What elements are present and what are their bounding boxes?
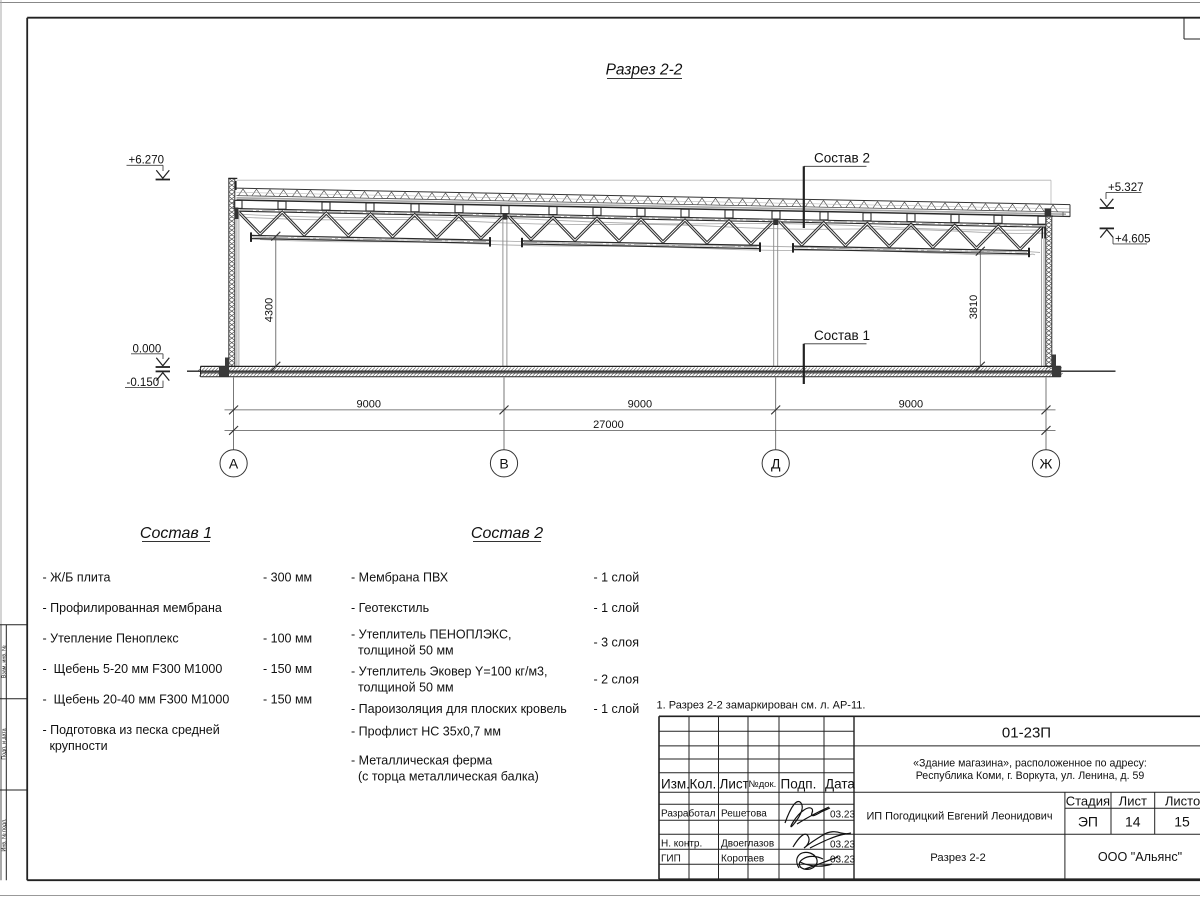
svg-text:«Здание магазина», расположенн: «Здание магазина», расположенное по адре…	[913, 758, 1147, 770]
svg-text:9000: 9000	[899, 399, 923, 411]
svg-text:№док.: №док.	[749, 779, 777, 790]
svg-text:- Профилированная мембрана: - Профилированная мембрана	[43, 601, 222, 615]
svg-text:крупности: крупности	[43, 739, 108, 753]
svg-text:Разработал: Разработал	[661, 808, 716, 820]
svg-text:03.23: 03.23	[830, 840, 855, 851]
svg-text:4300: 4300	[264, 298, 276, 322]
svg-text:- Утеплитель Эковер Y=100 кг/м: - Утеплитель Эковер Y=100 кг/м3,	[351, 665, 547, 679]
svg-text:толщиной 50 мм: толщиной 50 мм	[351, 644, 454, 658]
svg-text:ЭП: ЭП	[1078, 814, 1098, 830]
svg-text:Состав 1: Состав 1	[140, 525, 212, 542]
svg-text:- Мембрана ПВХ: - Мембрана ПВХ	[351, 571, 449, 585]
svg-text:- 2 слоя: - 2 слоя	[594, 673, 639, 687]
svg-text:Состав 1: Состав 1	[814, 328, 870, 343]
svg-text:Д: Д	[771, 455, 781, 471]
svg-text:3810: 3810	[968, 295, 980, 319]
svg-text:- Утепление Пеноплекс: - Утепление Пеноплекс	[43, 632, 179, 646]
svg-text:Двоеглазов: Двоеглазов	[721, 839, 774, 850]
svg-text:Разрез 2-2: Разрез 2-2	[930, 852, 985, 864]
svg-text:- Ж/Б плита: - Ж/Б плита	[43, 571, 111, 585]
svg-text:9000: 9000	[357, 399, 381, 411]
svg-text:- Профлист НС 35х0,7 мм: - Профлист НС 35х0,7 мм	[351, 725, 501, 739]
svg-text:Лист: Лист	[1119, 794, 1147, 809]
svg-text:Дата: Дата	[825, 777, 855, 792]
svg-text:Состав 2: Состав 2	[814, 151, 870, 166]
svg-text:Ж: Ж	[1040, 455, 1053, 471]
svg-text:- 1 слой: - 1 слой	[594, 601, 640, 615]
svg-text:Лист: Лист	[720, 777, 749, 792]
svg-text:14: 14	[1125, 814, 1141, 830]
svg-text:- 150 мм: - 150 мм	[263, 662, 312, 676]
svg-text:- 1 слой: - 1 слой	[594, 702, 640, 716]
svg-text:- Утеплитель ПЕНОПЛЭКС,: - Утеплитель ПЕНОПЛЭКС,	[351, 628, 511, 642]
svg-text:- 300 мм: - 300 мм	[263, 571, 312, 585]
svg-text:Листов: Листов	[1165, 794, 1200, 809]
svg-text:- 100 мм: - 100 мм	[263, 632, 312, 646]
svg-text:ООО "Альянс": ООО "Альянс"	[1098, 850, 1182, 864]
svg-text:- Щебень 20-40 мм F300 М1000: - Щебень 20-40 мм F300 М1000	[43, 693, 230, 707]
svg-text:В: В	[499, 455, 508, 471]
svg-text:01-23П: 01-23П	[1002, 725, 1051, 742]
svg-text:ИП Погодицкий Евгений Леонидов: ИП Погодицкий Евгений Леонидович	[866, 811, 1052, 823]
svg-text:- 3 слоя: - 3 слоя	[594, 636, 639, 650]
svg-text:Изм.: Изм.	[661, 777, 690, 792]
svg-text:Коротаев: Коротаев	[721, 854, 764, 865]
svg-text:- Подготовка из песка средней: - Подготовка из песка средней	[43, 723, 220, 737]
svg-text:Подп. и дата: Подп. и дата	[1, 728, 7, 759]
svg-text:Подп.: Подп.	[781, 777, 817, 792]
svg-text:03.23: 03.23	[830, 810, 855, 821]
svg-text:А: А	[229, 455, 239, 471]
svg-text:03.23: 03.23	[830, 855, 855, 866]
svg-text:- Пароизоляция для плоских кро: - Пароизоляция для плоских кровель	[351, 702, 567, 716]
svg-text:Разрез 2-2: Разрез 2-2	[606, 62, 683, 79]
svg-text:15: 15	[1174, 814, 1190, 830]
svg-text:Н. контр.: Н. контр.	[661, 839, 702, 850]
svg-text:- 150 мм: - 150 мм	[263, 693, 312, 707]
svg-text:- Щебень 5-20 мм F300 М1000: - Щебень 5-20 мм F300 М1000	[43, 662, 223, 676]
svg-text:Стадия: Стадия	[1066, 794, 1110, 809]
svg-text:- 1 слой: - 1 слой	[594, 571, 640, 585]
svg-text:27000: 27000	[593, 419, 624, 431]
svg-text:Решетова: Решетова	[721, 809, 767, 820]
svg-text:толщиной 50 мм: толщиной 50 мм	[351, 681, 454, 695]
svg-text:Взам. инв. №: Взам. инв. №	[1, 645, 7, 678]
svg-text:(с торца металлическая балка): (с торца металлическая балка)	[351, 770, 539, 784]
svg-text:9000: 9000	[628, 399, 652, 411]
svg-text:- Металлическая ферма: - Металлическая ферма	[351, 754, 492, 768]
svg-text:- Геотекстиль: - Геотекстиль	[351, 601, 429, 615]
svg-text:ГИП: ГИП	[661, 854, 681, 865]
svg-text:Состав 2: Состав 2	[471, 525, 543, 542]
svg-text:Инв. № подл.: Инв. № подл.	[1, 819, 7, 852]
svg-text:+6.270: +6.270	[129, 155, 165, 167]
svg-text:Кол.: Кол.	[690, 777, 717, 792]
svg-text:Республика Коми, г. Воркута, у: Республика Коми, г. Воркута, ул. Ленина,…	[916, 770, 1145, 782]
svg-text:1. Разрез 2-2 замаркирован см.: 1. Разрез 2-2 замаркирован см. л. АР-11.	[657, 700, 866, 712]
